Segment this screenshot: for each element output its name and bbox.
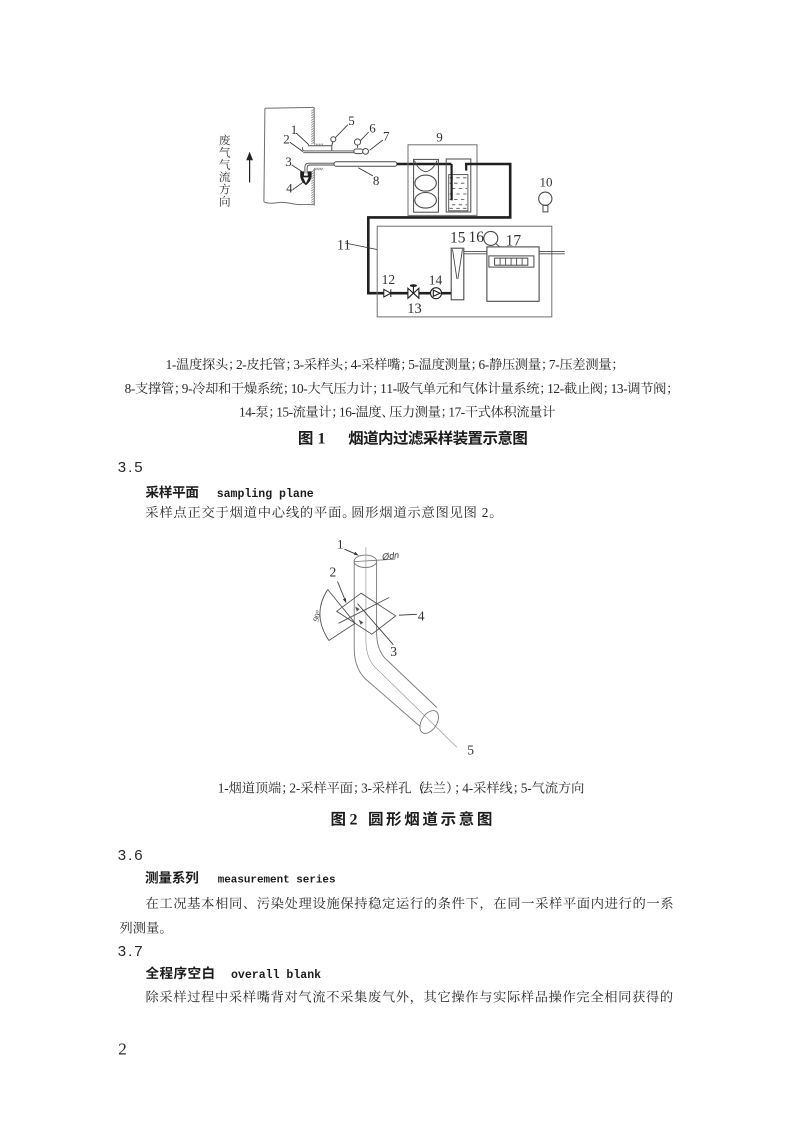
svg-text:9-: 9- <box>182 381 193 396</box>
svg-text:6-: 6- <box>479 357 490 372</box>
svg-text:2: 2 <box>350 812 358 829</box>
svg-text:12-: 12- <box>547 381 564 396</box>
svg-text:5: 5 <box>348 113 355 128</box>
svg-text:7: 7 <box>383 128 390 143</box>
svg-text:2: 2 <box>482 505 489 520</box>
svg-text:10-: 10- <box>291 381 308 396</box>
svg-text:Ødn: Ødn <box>381 550 400 562</box>
svg-text:3.7: 3.7 <box>118 943 145 960</box>
svg-text:overall blank: overall blank <box>231 969 321 982</box>
svg-text:17-: 17- <box>448 405 465 420</box>
svg-text:2: 2 <box>330 565 337 580</box>
svg-text:5-: 5- <box>521 781 532 796</box>
svg-text:2: 2 <box>283 131 290 146</box>
svg-text:3.5: 3.5 <box>118 459 145 476</box>
svg-text:3-: 3- <box>293 357 304 372</box>
svg-text:4: 4 <box>418 609 425 624</box>
svg-text:2-: 2- <box>289 781 300 796</box>
svg-text:measurement series: measurement series <box>218 875 336 887</box>
svg-text:2-: 2- <box>236 357 247 372</box>
svg-text:15-: 15- <box>276 405 293 420</box>
svg-text:14: 14 <box>429 273 443 288</box>
svg-text:13-: 13- <box>611 381 628 396</box>
svg-text:8: 8 <box>373 173 380 188</box>
svg-text:2: 2 <box>118 1040 127 1059</box>
svg-text:10: 10 <box>540 175 553 190</box>
svg-text:3: 3 <box>390 644 397 659</box>
svg-text:90°: 90° <box>311 609 323 622</box>
svg-text:16: 16 <box>469 229 485 246</box>
svg-text:3.6: 3.6 <box>118 847 145 864</box>
svg-text:1-: 1- <box>218 781 229 796</box>
svg-text:9: 9 <box>436 129 443 144</box>
svg-text:5: 5 <box>467 743 474 758</box>
svg-text:5-: 5- <box>408 357 419 372</box>
svg-text:3-: 3- <box>361 781 372 796</box>
svg-text:7-: 7- <box>549 357 560 372</box>
svg-text:15: 15 <box>450 230 466 247</box>
svg-text:sampling plane: sampling plane <box>217 488 314 501</box>
svg-text:13: 13 <box>407 301 422 317</box>
svg-text:11-: 11- <box>380 381 397 396</box>
svg-text:16-: 16- <box>339 405 356 420</box>
svg-text:14-: 14- <box>239 405 256 420</box>
svg-text:4: 4 <box>286 180 293 195</box>
svg-text:1: 1 <box>337 537 344 552</box>
svg-text:1: 1 <box>318 431 326 448</box>
svg-text:3: 3 <box>285 154 292 169</box>
svg-text:4-: 4- <box>351 357 362 372</box>
svg-text:4-: 4- <box>462 781 473 796</box>
svg-text:1: 1 <box>291 122 298 137</box>
svg-text:1-: 1- <box>166 357 177 372</box>
svg-text:12: 12 <box>382 272 396 287</box>
svg-text:17: 17 <box>506 232 522 249</box>
svg-text:11: 11 <box>337 237 351 253</box>
svg-text:8-: 8- <box>125 381 136 396</box>
svg-text:6: 6 <box>369 120 376 135</box>
